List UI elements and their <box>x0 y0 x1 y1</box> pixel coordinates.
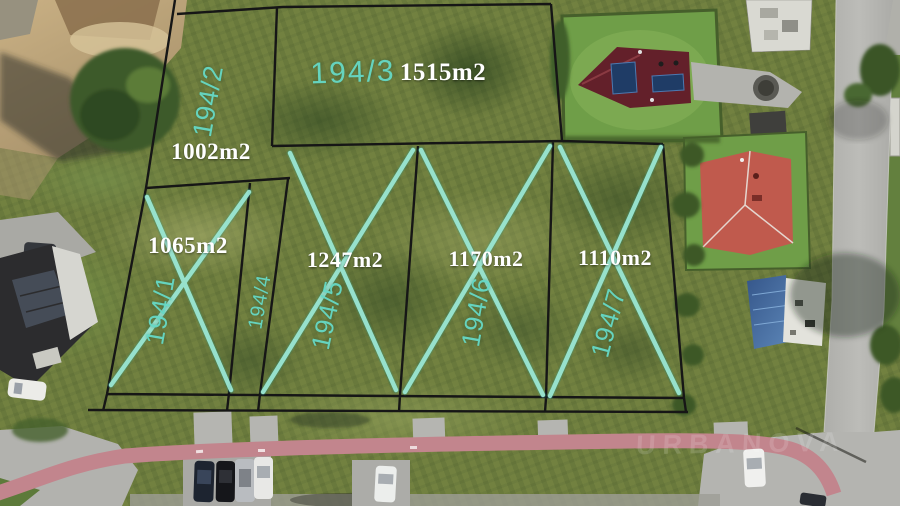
plot-194-1-area: 1065m2 <box>140 234 236 258</box>
plot-194-5-area: 1247m2 <box>299 248 391 271</box>
parked-car-white-mid <box>374 466 397 503</box>
plot-194-3-area: 1515m2 <box>383 60 503 86</box>
parked-car-white-left <box>7 378 47 401</box>
plot-194-2-area: 1002m2 <box>163 140 259 164</box>
solar-panel-2 <box>652 74 684 92</box>
solar-panel <box>611 62 637 94</box>
building-right-edge <box>890 98 900 156</box>
left-buildings <box>0 212 98 401</box>
watermark: URBANOVA <box>635 426 897 462</box>
plot-194-7-area: 1110m2 <box>569 246 661 269</box>
aerial-photo-scene: 194/2 1002m2 194/3 1515m2 1065m2 194/1 1… <box>0 0 900 506</box>
salmon-roof <box>700 151 793 255</box>
plot-194-6-area: 1170m2 <box>440 247 532 270</box>
driveway <box>691 62 802 108</box>
white-building-top <box>746 0 812 52</box>
